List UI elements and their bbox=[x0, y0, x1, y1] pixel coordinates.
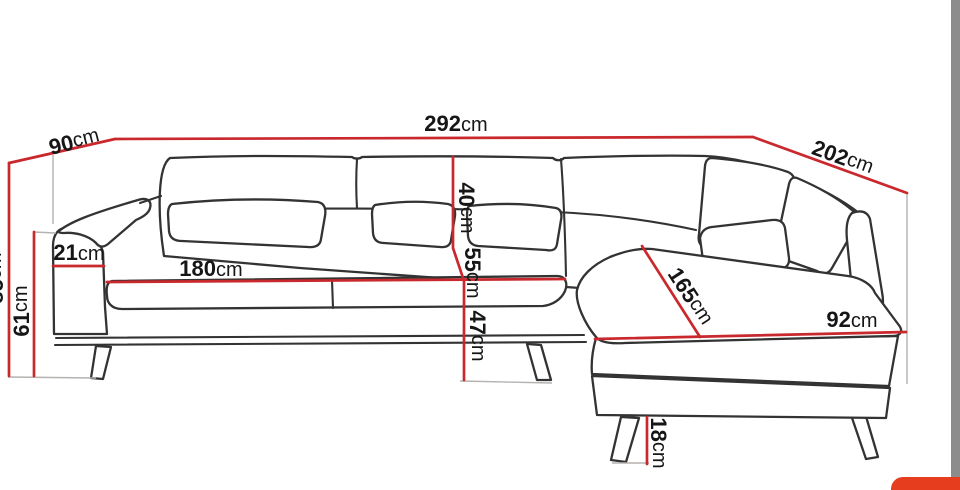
corner-action-button[interactable] bbox=[891, 477, 960, 490]
sofa-dimension-diagram: 292cm 90cm 202cm 85cm 61cm 21cm 180cm 40… bbox=[0, 0, 960, 490]
chaise-leg-left bbox=[611, 417, 639, 462]
dim-seat-width-value: 180 bbox=[179, 256, 216, 281]
guide-floor-left bbox=[8, 377, 96, 378]
dim-label-right-depth: 202cm bbox=[809, 134, 877, 179]
bench-leg-left bbox=[91, 346, 111, 379]
dim-arm-width-unit: cm bbox=[78, 243, 105, 265]
guide-arm-top bbox=[33, 232, 56, 233]
dim-label-leg-height: 18cm bbox=[647, 417, 672, 468]
dim-leg-height-unit: cm bbox=[648, 442, 670, 469]
back-pillow-2 bbox=[372, 202, 455, 247]
dim-label-total-width: 292cm bbox=[424, 111, 487, 136]
dim-chaise-depth-unit: cm bbox=[851, 310, 878, 332]
backrest-seam-1 bbox=[356, 159, 357, 208]
dim-chaise-depth-value: 92 bbox=[826, 307, 850, 332]
back-pillow-3 bbox=[467, 204, 561, 250]
chaise-leg-right bbox=[850, 412, 878, 459]
dim-total-height-unit: cm bbox=[0, 252, 6, 279]
dim-seat-cushion-height-unit: cm bbox=[462, 272, 484, 299]
dim-seat-height-value: 47 bbox=[466, 310, 491, 334]
guide-floor-mid bbox=[460, 381, 552, 383]
dim-seat-height-unit: cm bbox=[467, 335, 489, 362]
dim-right-depth-unit: cm bbox=[844, 148, 877, 178]
dim-label-seat-height: 47cm bbox=[466, 310, 491, 361]
dim-label-seat-width: 180cm bbox=[179, 256, 242, 281]
back-pillow-1 bbox=[168, 199, 325, 247]
scrollbar[interactable] bbox=[951, 0, 960, 478]
dim-arm-height-value: 61 bbox=[9, 312, 34, 336]
dim-leg-height-value: 18 bbox=[647, 417, 672, 441]
dim-label-arm-width: 21cm bbox=[53, 240, 104, 265]
dim-label-chaise-depth: 92cm bbox=[826, 307, 877, 332]
dim-seat-cushion-height-value: 55 bbox=[461, 247, 486, 271]
dim-line-total-width bbox=[115, 137, 753, 139]
bench-leg-right bbox=[527, 344, 551, 380]
dim-seat-width-unit: cm bbox=[216, 259, 243, 281]
dim-label-total-height: 85cm bbox=[0, 252, 8, 303]
dim-total-width-unit: cm bbox=[461, 114, 488, 136]
bench-seat-seam bbox=[332, 280, 333, 308]
dim-left-depth-unit: cm bbox=[70, 124, 101, 152]
dim-label-seat-cushion-height: 55cm bbox=[461, 247, 486, 298]
dim-total-height-value: 85 bbox=[0, 279, 8, 303]
dim-label-left-depth: 90cm bbox=[46, 123, 102, 160]
dim-arm-height-unit: cm bbox=[10, 285, 32, 312]
dim-back-cushion-height-value: 40 bbox=[455, 182, 480, 206]
dim-back-cushion-height-unit: cm bbox=[456, 207, 478, 234]
dim-label-arm-height: 61cm bbox=[9, 285, 34, 336]
bench-plinth-top bbox=[56, 335, 584, 338]
dim-label-back-cushion-height: 40cm bbox=[455, 182, 480, 233]
dim-arm-width-value: 21 bbox=[53, 240, 77, 265]
dim-total-width-value: 292 bbox=[424, 111, 461, 136]
sofa-dimension-page: 292cm 90cm 202cm 85cm 61cm 21cm 180cm 40… bbox=[0, 0, 960, 490]
bench-plinth-bottom bbox=[55, 342, 586, 345]
